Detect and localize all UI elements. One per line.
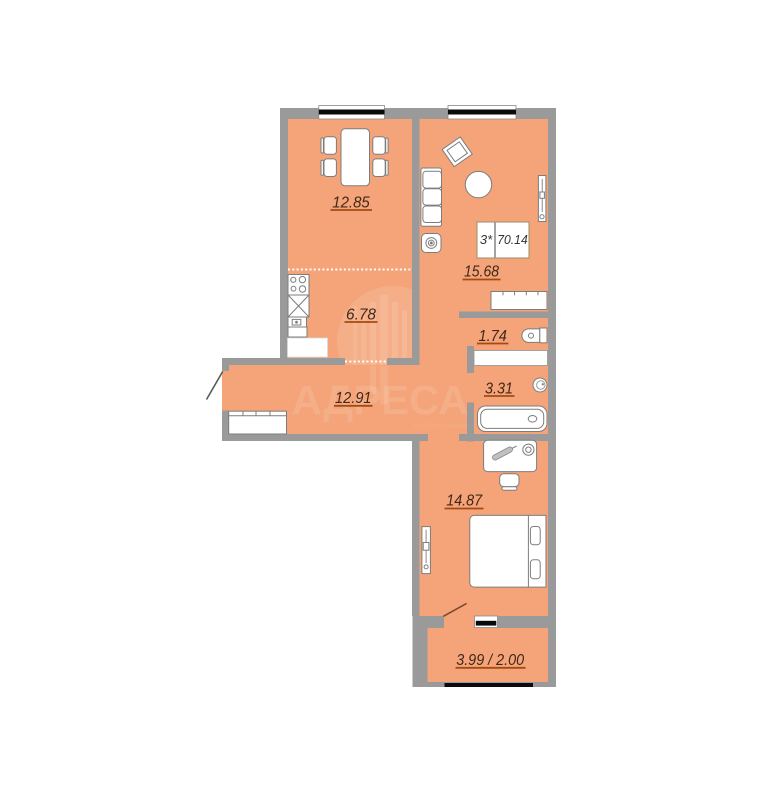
svg-text:3*: 3* [480,232,493,247]
svg-text:1.74: 1.74 [478,328,507,345]
svg-text:АГЕНТСТВО НЕДВИЖИМОСТИ: АГЕНТСТВО НЕДВИЖИМОСТИ [413,423,475,430]
svg-text:АДРЕСА: АДРЕСА [292,377,469,423]
svg-text:3.99 / 2.00: 3.99 / 2.00 [456,652,524,669]
svg-text:14.87: 14.87 [446,493,483,510]
svg-text:3.31: 3.31 [485,380,513,397]
svg-text:15.68: 15.68 [464,264,499,281]
svg-text:12.85: 12.85 [332,195,370,212]
svg-text:12.91: 12.91 [335,390,372,407]
svg-text:70.14: 70.14 [497,232,528,247]
svg-text:6.78: 6.78 [346,307,376,324]
